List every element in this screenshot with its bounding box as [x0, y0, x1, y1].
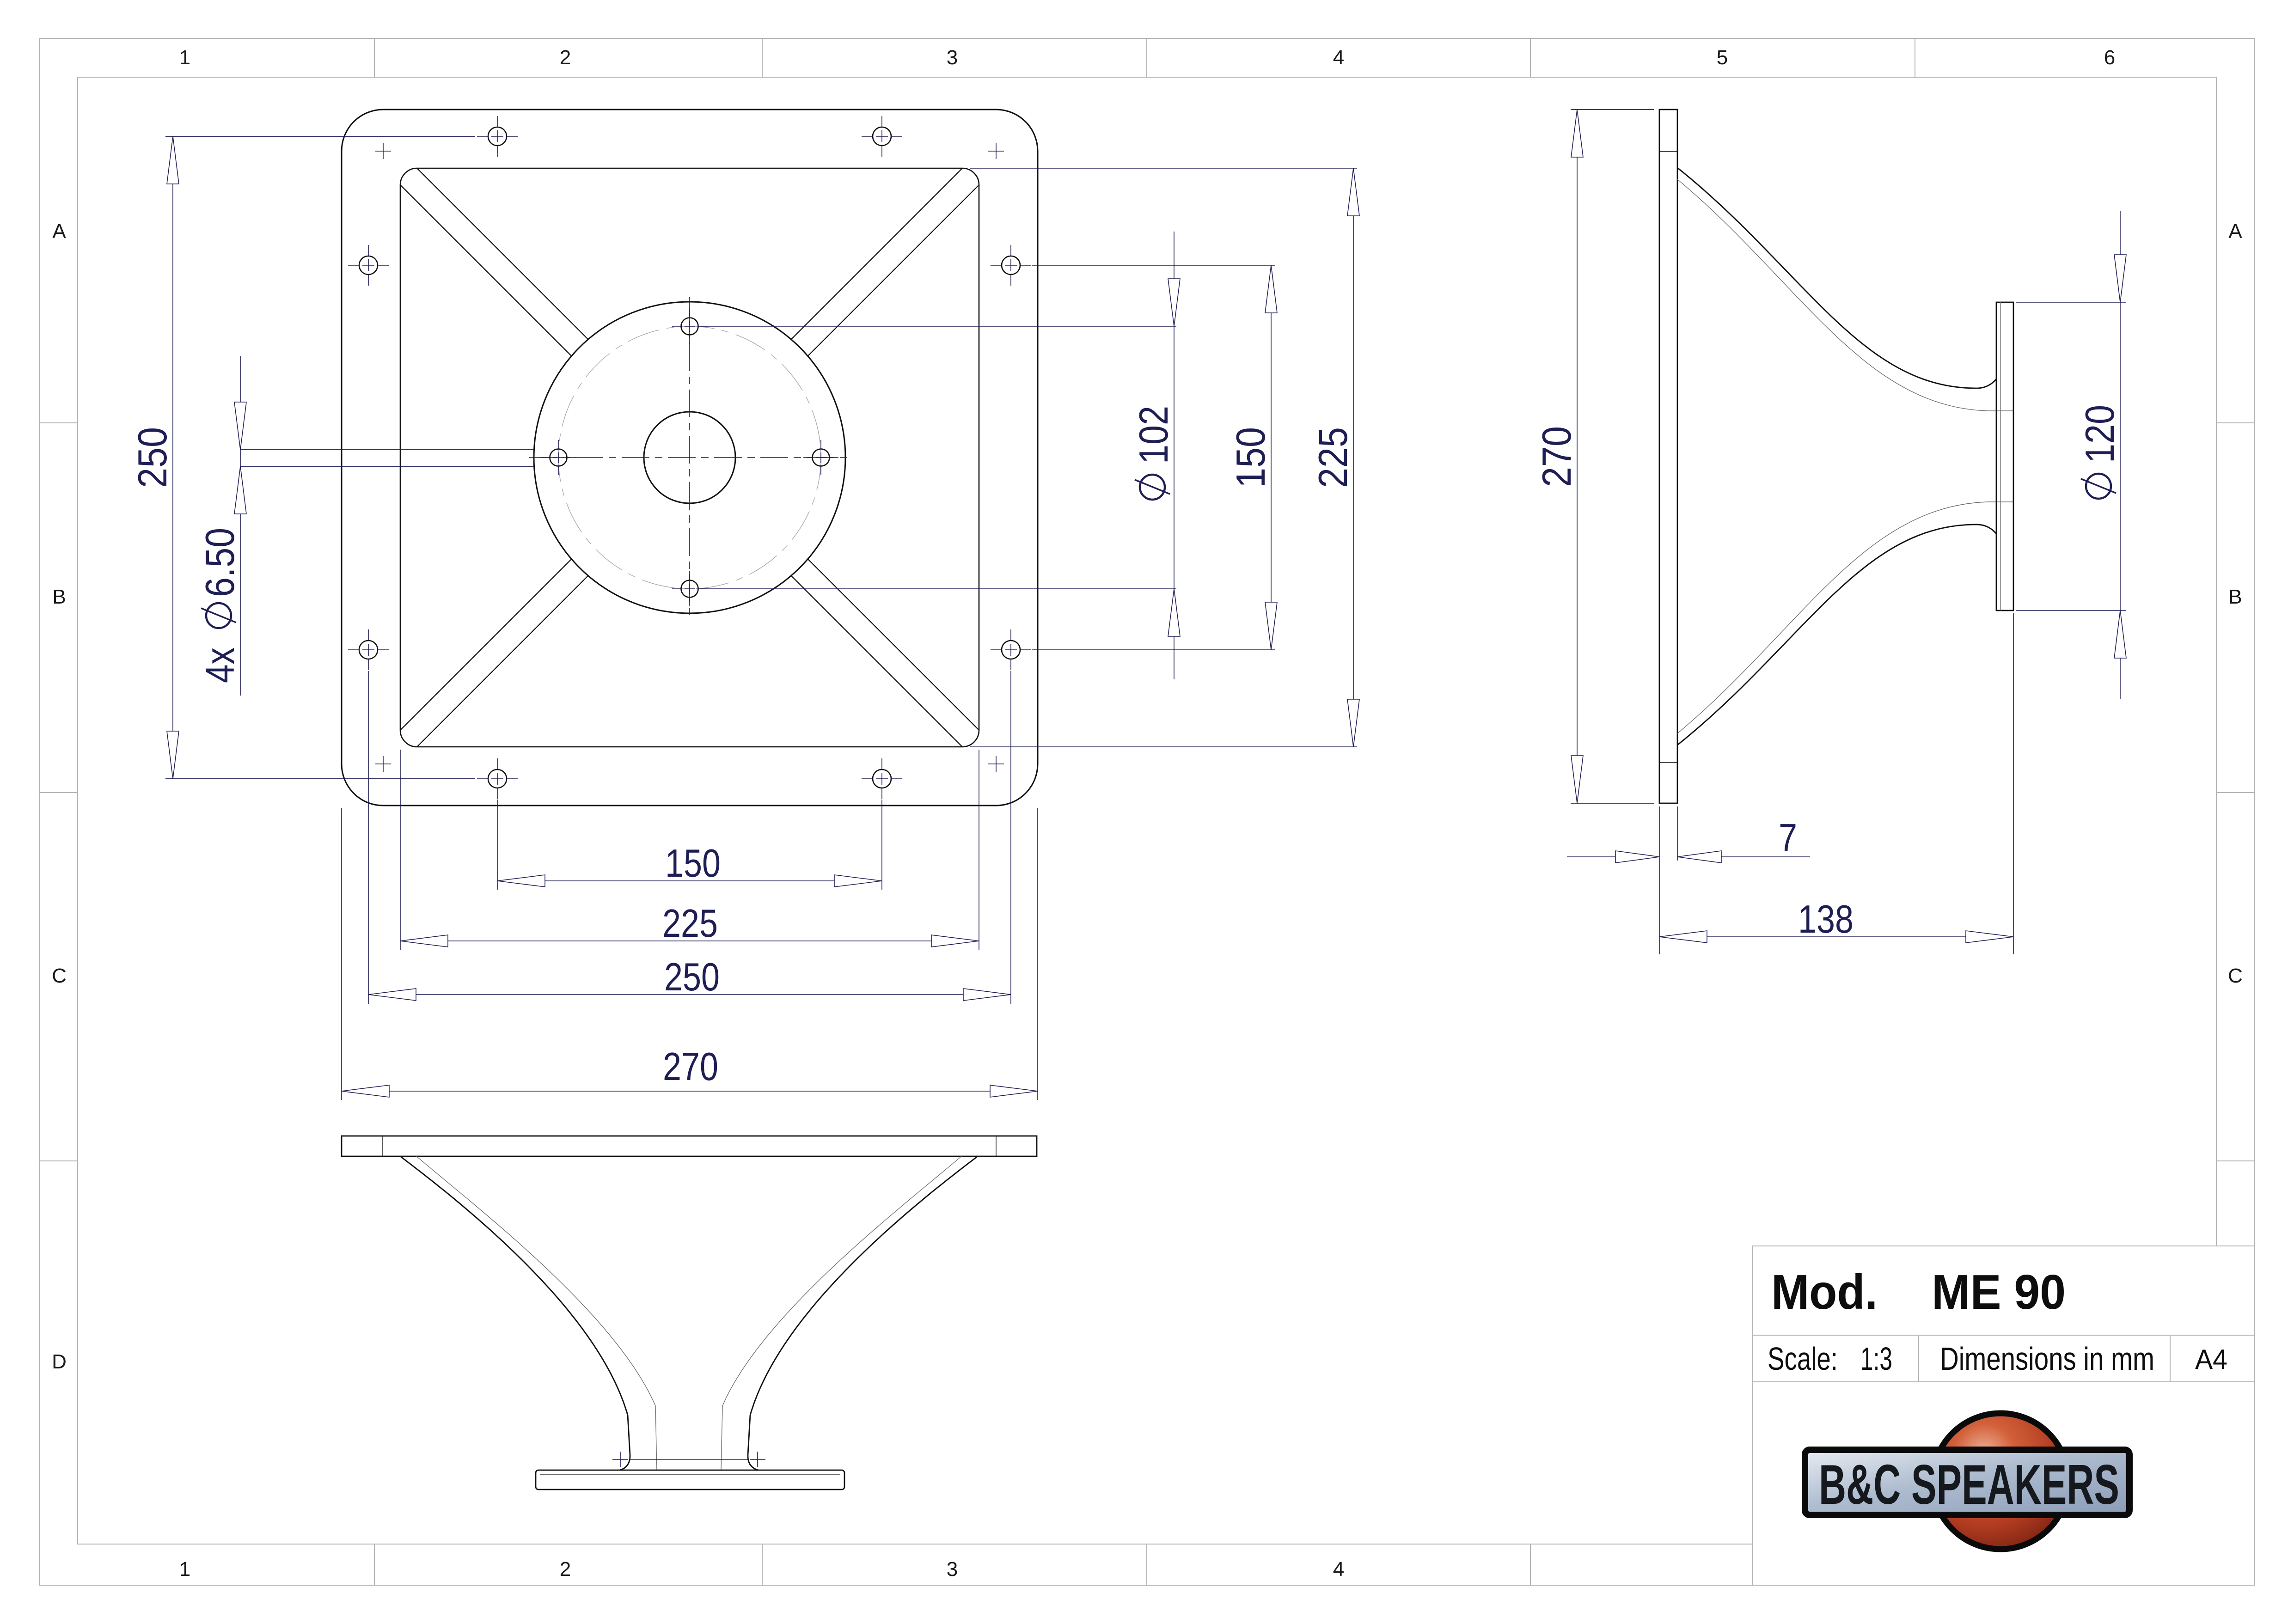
svg-text:5: 5 [1717, 46, 1728, 69]
svg-text:250: 250 [664, 955, 720, 999]
svg-text:6.50: 6.50 [197, 528, 243, 597]
svg-text:138: 138 [1798, 897, 1854, 941]
svg-text:1: 1 [179, 1558, 190, 1581]
svg-text:225: 225 [1310, 427, 1356, 488]
svg-text:3: 3 [947, 46, 958, 69]
svg-text:4x: 4x [197, 647, 243, 683]
svg-text:3: 3 [947, 1558, 958, 1581]
svg-text:150: 150 [1228, 427, 1273, 488]
svg-text:ME 90: ME 90 [1932, 1265, 2066, 1319]
svg-text:C: C [52, 965, 67, 987]
svg-text:B: B [52, 586, 66, 608]
svg-text:2: 2 [560, 46, 571, 69]
svg-text:102: 102 [1131, 406, 1176, 464]
svg-text:A4: A4 [2195, 1344, 2227, 1375]
svg-text:D: D [52, 1350, 67, 1373]
svg-text:C: C [2228, 965, 2243, 987]
svg-text:1: 1 [179, 46, 190, 69]
svg-text:A: A [2228, 220, 2242, 243]
svg-text:4: 4 [1333, 1558, 1344, 1581]
svg-text:B: B [2228, 586, 2242, 608]
svg-text:270: 270 [1534, 426, 1579, 487]
svg-text:Mod.: Mod. [1771, 1265, 1878, 1319]
svg-text:1:3: 1:3 [1860, 1341, 1892, 1377]
svg-text:120: 120 [2077, 405, 2123, 463]
svg-text:2: 2 [560, 1558, 571, 1581]
svg-text:270: 270 [663, 1045, 718, 1089]
svg-text:250: 250 [129, 427, 175, 488]
svg-text:4: 4 [1333, 46, 1344, 69]
svg-text:B&C SPEAKERS: B&C SPEAKERS [1819, 1453, 2119, 1516]
svg-text:Dimensions in mm: Dimensions in mm [1940, 1341, 2154, 1377]
svg-text:A: A [52, 220, 66, 243]
svg-text:Scale:: Scale: [1768, 1341, 1838, 1377]
svg-text:150: 150 [665, 842, 721, 885]
svg-text:7: 7 [1779, 816, 1797, 860]
svg-text:6: 6 [2104, 46, 2115, 69]
svg-text:225: 225 [662, 902, 718, 946]
